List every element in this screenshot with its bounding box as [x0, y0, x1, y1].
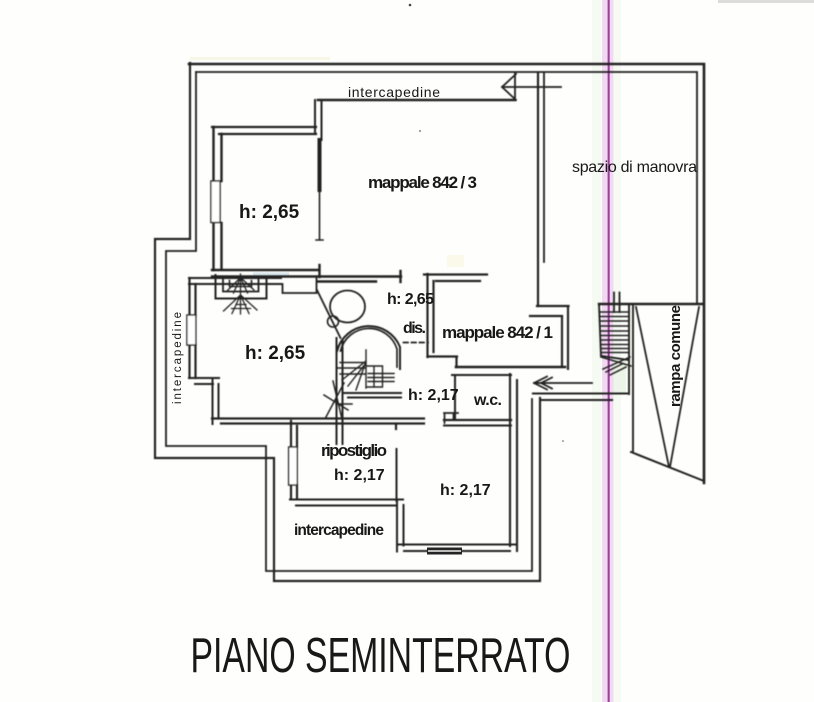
svg-text:rampa comune: rampa comune: [667, 305, 684, 407]
svg-text:PIANO SEMINTERRATO: PIANO SEMINTERRATO: [191, 628, 571, 683]
svg-text:dis.: dis.: [403, 320, 426, 337]
svg-text:intercapedine: intercapedine: [294, 522, 384, 539]
svg-text:mappale 842 / 1: mappale 842 / 1: [442, 323, 553, 342]
svg-text:h: 2,17: h: 2,17: [334, 467, 385, 484]
svg-text:h: 2,17: h: 2,17: [440, 482, 491, 499]
svg-text:mappale 842 / 3: mappale 842 / 3: [368, 173, 477, 192]
svg-text:h: 2,65: h: 2,65: [387, 291, 434, 308]
svg-text:intercapedine: intercapedine: [348, 84, 440, 100]
svg-text:h: 2,17: h: 2,17: [408, 387, 459, 404]
svg-text:ripostiglio: ripostiglio: [321, 441, 387, 460]
svg-text:h: 2,65: h: 2,65: [239, 202, 300, 223]
svg-text:h: 2,65: h: 2,65: [245, 343, 306, 364]
svg-text:spazio di manovra: spazio di manovra: [572, 159, 697, 176]
svg-text:w.c.: w.c.: [473, 392, 502, 409]
